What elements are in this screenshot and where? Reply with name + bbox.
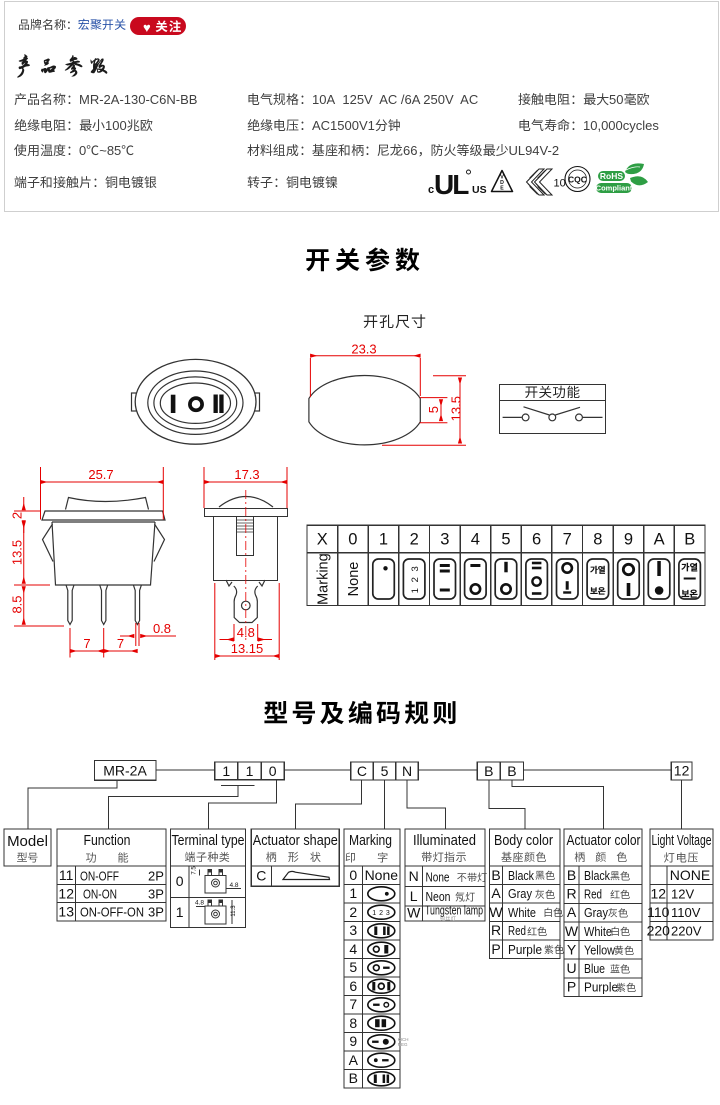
svg-text:红色: 红色 bbox=[610, 886, 630, 901]
svg-text:C: C bbox=[357, 761, 367, 781]
svg-text:不带灯: 不带灯 bbox=[457, 869, 487, 884]
svg-text:0: 0 bbox=[348, 526, 357, 550]
svg-text:12: 12 bbox=[674, 761, 690, 781]
svg-text:E: E bbox=[500, 185, 504, 192]
svg-text:12: 12 bbox=[58, 884, 74, 904]
svg-text:Black: Black bbox=[584, 865, 610, 884]
svg-text:None: None bbox=[342, 562, 363, 597]
svg-text:MR-2A: MR-2A bbox=[103, 761, 147, 781]
svg-text:13.5: 13.5 bbox=[7, 540, 26, 565]
svg-text:5: 5 bbox=[501, 526, 510, 550]
svg-text:Body color: Body color bbox=[494, 829, 553, 850]
svg-text:CQC: CQC bbox=[568, 174, 587, 186]
svg-text:Actuator color: Actuator color bbox=[567, 829, 641, 850]
svg-text:1: 1 bbox=[349, 883, 357, 903]
svg-text:Function: Function bbox=[84, 829, 131, 850]
svg-text:Red: Red bbox=[508, 920, 526, 939]
svg-text:Gray: Gray bbox=[508, 883, 532, 902]
svg-text:5: 5 bbox=[349, 957, 357, 977]
svg-text:灯电压: 灯电压 bbox=[664, 850, 700, 866]
svg-text:Y: Y bbox=[567, 939, 577, 959]
svg-text:功 能: 功 能 bbox=[85, 850, 137, 866]
svg-text:13: 13 bbox=[58, 902, 74, 922]
svg-text:Red: Red bbox=[584, 884, 602, 903]
svg-text:NONE: NONE bbox=[670, 865, 710, 885]
svg-text:A: A bbox=[567, 902, 577, 922]
svg-text:None: None bbox=[365, 865, 399, 885]
svg-text:12: 12 bbox=[651, 884, 667, 904]
svg-text:白色: 白色 bbox=[543, 904, 563, 919]
svg-text:Gray: Gray bbox=[584, 902, 608, 921]
svg-text:W: W bbox=[565, 921, 579, 941]
svg-text:1 2 3: 1 2 3 bbox=[372, 908, 390, 918]
svg-text:White: White bbox=[584, 921, 612, 940]
svg-text:8.5: 8.5 bbox=[7, 595, 26, 613]
svg-text:2: 2 bbox=[7, 512, 26, 519]
svg-text:Blue: Blue bbox=[584, 958, 605, 977]
svg-text:A: A bbox=[491, 883, 501, 903]
svg-text:X: X bbox=[317, 526, 328, 550]
svg-text:0: 0 bbox=[269, 761, 277, 781]
svg-text:B: B bbox=[349, 1068, 358, 1088]
svg-text:3P: 3P bbox=[148, 902, 164, 921]
svg-text:7.5: 7.5 bbox=[189, 866, 198, 875]
svg-text:钨丝灯: 钨丝灯 bbox=[440, 915, 457, 923]
svg-text:5: 5 bbox=[423, 406, 442, 413]
svg-text:6: 6 bbox=[532, 526, 541, 550]
svg-text:带灯指示: 带灯指示 bbox=[421, 849, 467, 865]
svg-text:端子种类: 端子种类 bbox=[185, 849, 231, 865]
svg-text:B: B bbox=[684, 526, 695, 550]
svg-text:2P: 2P bbox=[148, 866, 164, 885]
svg-text:U: U bbox=[566, 958, 576, 978]
svg-text:ON-ON: ON-ON bbox=[83, 884, 117, 903]
svg-text:11.3: 11.3 bbox=[228, 905, 237, 917]
svg-text:黑色: 黑色 bbox=[610, 867, 630, 882]
svg-text:8: 8 bbox=[349, 1013, 357, 1033]
svg-text:印 字: 印 字 bbox=[345, 850, 397, 866]
svg-text:蓝色: 蓝色 bbox=[610, 961, 630, 976]
svg-text:型号: 型号 bbox=[17, 850, 39, 866]
svg-text:110V: 110V bbox=[671, 902, 701, 921]
svg-text:Model: Model bbox=[7, 830, 48, 851]
svg-text:灰色: 灰色 bbox=[608, 905, 628, 920]
svg-text:紫色: 紫色 bbox=[544, 941, 564, 956]
svg-text:0: 0 bbox=[176, 871, 184, 891]
svg-text:11: 11 bbox=[59, 865, 74, 885]
svg-text:7: 7 bbox=[83, 633, 90, 652]
svg-text:Compliant: Compliant bbox=[596, 183, 633, 194]
svg-text:ON-OFF: ON-OFF bbox=[80, 866, 119, 885]
svg-text:B: B bbox=[491, 865, 500, 885]
svg-text:3P: 3P bbox=[148, 884, 164, 903]
svg-text:25.7: 25.7 bbox=[88, 464, 113, 483]
svg-text:Marking: Marking bbox=[311, 553, 332, 605]
svg-text:3: 3 bbox=[440, 526, 449, 550]
svg-text:P: P bbox=[567, 977, 576, 997]
svg-text:0.8: 0.8 bbox=[153, 618, 171, 637]
svg-text:Yellow: Yellow bbox=[584, 939, 616, 958]
svg-text:A: A bbox=[349, 1050, 359, 1070]
svg-text:黑色: 黑色 bbox=[535, 867, 555, 882]
svg-text:13.15: 13.15 bbox=[231, 638, 264, 657]
svg-text:Purple: Purple bbox=[508, 939, 542, 958]
svg-text:4.8: 4.8 bbox=[195, 897, 204, 907]
svg-text:灰色: 灰色 bbox=[535, 886, 555, 901]
svg-text:N: N bbox=[402, 761, 412, 781]
svg-text:N: N bbox=[409, 866, 419, 886]
svg-text:Black: Black bbox=[508, 865, 534, 884]
svg-text:紫色: 紫色 bbox=[616, 979, 636, 994]
svg-text:7: 7 bbox=[349, 994, 357, 1014]
svg-text:UL: UL bbox=[434, 163, 469, 202]
svg-text:红色: 红色 bbox=[527, 923, 547, 938]
svg-text:P: P bbox=[491, 939, 500, 959]
svg-text:8: 8 bbox=[593, 526, 602, 550]
svg-text:5: 5 bbox=[381, 761, 389, 781]
svg-text:REG: REG bbox=[398, 1042, 408, 1048]
svg-text:W: W bbox=[489, 902, 503, 922]
svg-text:4: 4 bbox=[349, 939, 357, 959]
svg-text:白色: 白色 bbox=[610, 923, 630, 938]
svg-text:Marking: Marking bbox=[349, 829, 392, 850]
svg-text:黄色: 黄色 bbox=[614, 942, 634, 957]
svg-text:2: 2 bbox=[410, 526, 419, 550]
svg-text:10: 10 bbox=[554, 175, 566, 191]
svg-text:보온: 보온 bbox=[589, 585, 606, 597]
svg-text:23.3: 23.3 bbox=[351, 339, 376, 358]
svg-text:6: 6 bbox=[349, 976, 357, 996]
svg-text:220V: 220V bbox=[671, 921, 702, 940]
svg-text:가열: 가열 bbox=[589, 564, 606, 576]
svg-text:Actuator shape: Actuator shape bbox=[253, 829, 338, 850]
svg-text:7: 7 bbox=[563, 526, 572, 550]
svg-text:Light Voltage: Light Voltage bbox=[652, 829, 712, 850]
svg-text:1: 1 bbox=[246, 761, 254, 781]
svg-text:B: B bbox=[484, 761, 493, 781]
svg-text:柄 颜 色: 柄 颜 色 bbox=[574, 849, 631, 865]
svg-text:220: 220 bbox=[647, 921, 671, 941]
svg-text:2: 2 bbox=[349, 902, 357, 922]
svg-text:Purple: Purple bbox=[584, 977, 618, 996]
svg-text:Terminal type: Terminal type bbox=[172, 829, 245, 850]
svg-text:가열: 가열 bbox=[680, 561, 698, 574]
svg-text:US: US bbox=[472, 182, 487, 197]
svg-text:1: 1 bbox=[176, 902, 184, 922]
svg-text:보온: 보온 bbox=[680, 587, 698, 600]
svg-text:4.8: 4.8 bbox=[229, 879, 238, 889]
svg-text:9: 9 bbox=[349, 1031, 357, 1051]
svg-text:R: R bbox=[566, 884, 576, 904]
svg-text:Illuminated: Illuminated bbox=[413, 829, 476, 850]
svg-text:基座颜色: 基座颜色 bbox=[501, 849, 547, 865]
svg-text:12V: 12V bbox=[671, 884, 694, 903]
svg-text:R: R bbox=[491, 920, 501, 940]
svg-text:17.3: 17.3 bbox=[234, 464, 259, 483]
svg-text:None: None bbox=[426, 867, 450, 886]
svg-text:开关功能: 开关功能 bbox=[525, 381, 581, 401]
svg-text:B: B bbox=[507, 761, 516, 781]
svg-text:ON-OFF-ON: ON-OFF-ON bbox=[80, 902, 144, 921]
svg-text:1 2 3: 1 2 3 bbox=[407, 565, 421, 594]
svg-text:0: 0 bbox=[349, 865, 357, 885]
svg-text:1: 1 bbox=[379, 526, 388, 550]
svg-text:柄 形 状: 柄 形 状 bbox=[266, 849, 325, 865]
svg-text:W: W bbox=[407, 903, 421, 923]
svg-text:7: 7 bbox=[117, 633, 124, 652]
svg-text:C: C bbox=[256, 866, 266, 886]
svg-text:RoHS: RoHS bbox=[600, 170, 623, 182]
svg-text:White: White bbox=[508, 902, 536, 921]
svg-text:9: 9 bbox=[624, 526, 633, 550]
svg-text:3: 3 bbox=[349, 920, 357, 940]
svg-text:1: 1 bbox=[222, 761, 230, 781]
svg-text:110: 110 bbox=[647, 902, 670, 922]
svg-text:A: A bbox=[654, 526, 665, 550]
svg-text:4: 4 bbox=[471, 526, 480, 550]
svg-text:B: B bbox=[567, 865, 576, 885]
svg-text:13.5: 13.5 bbox=[446, 396, 465, 421]
